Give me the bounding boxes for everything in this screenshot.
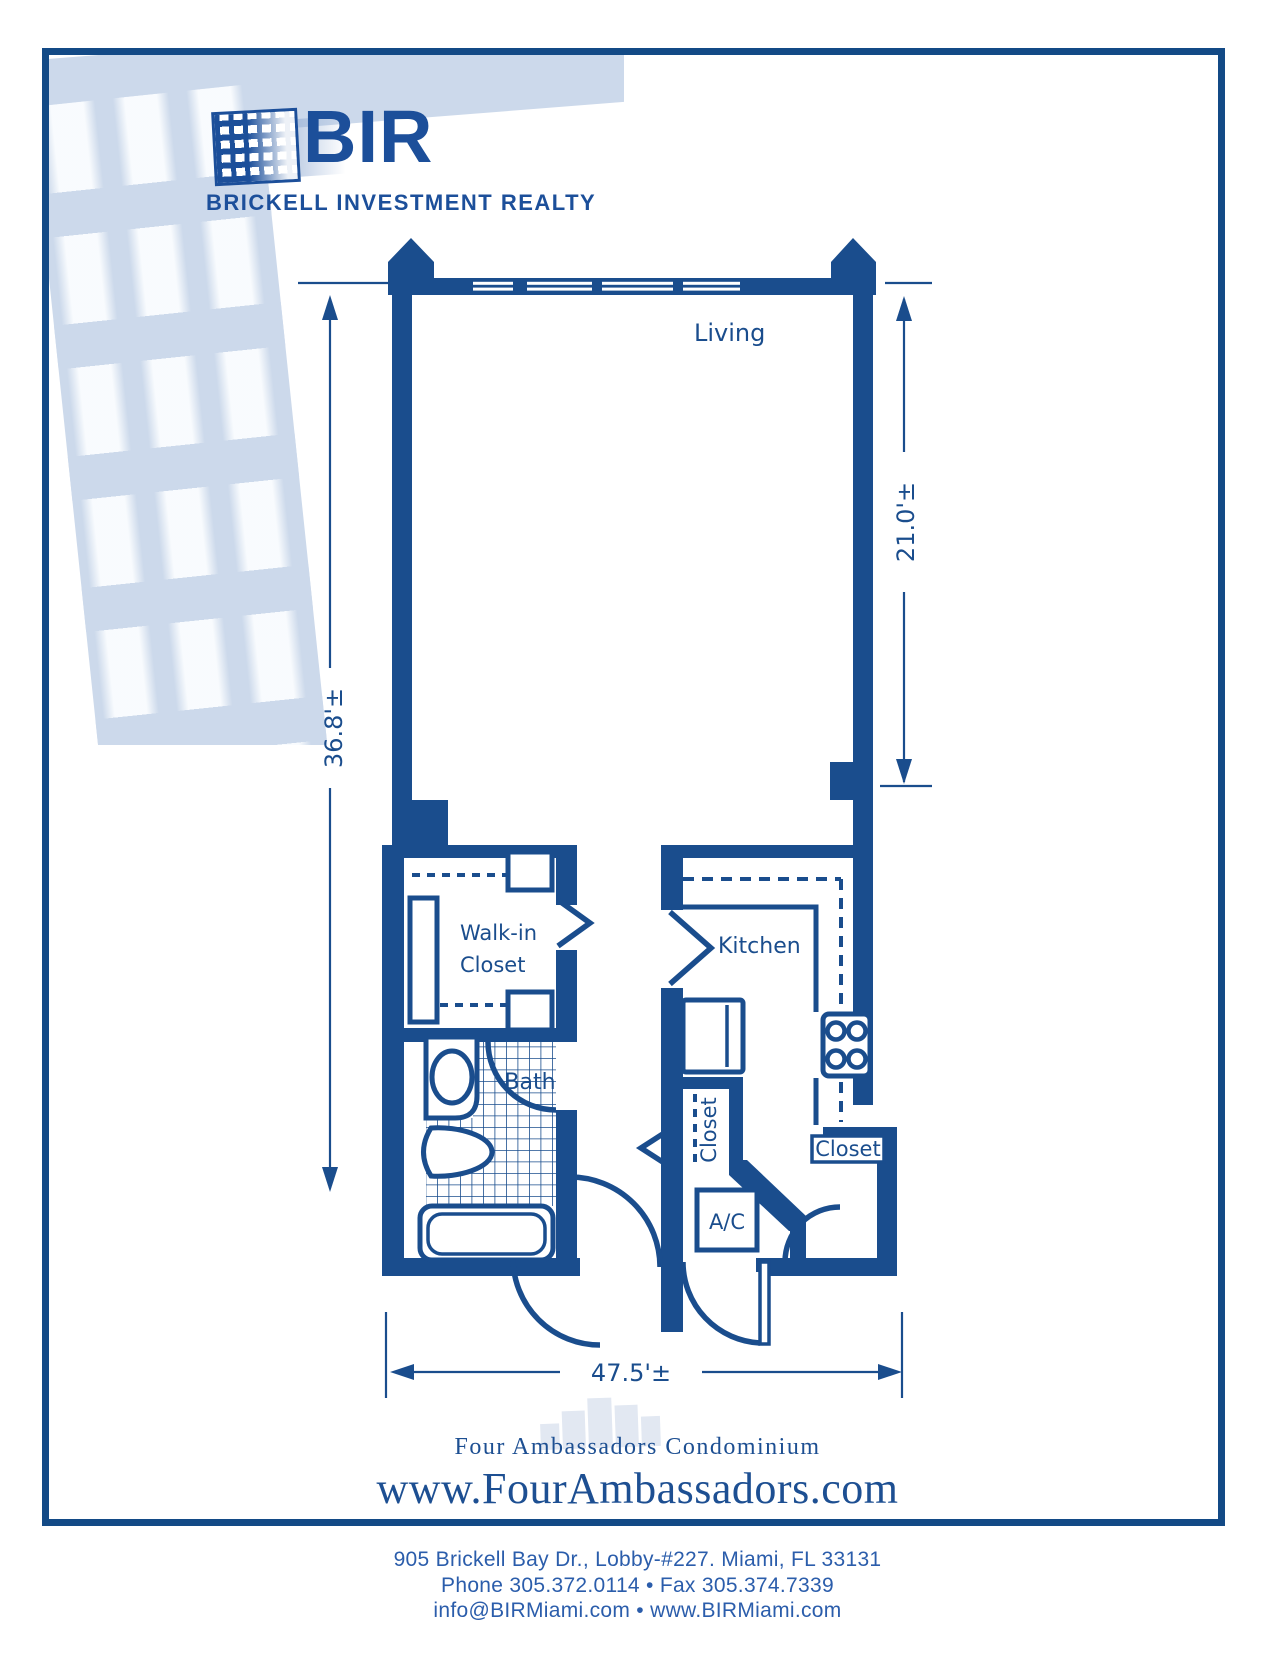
kitchen-top-wall <box>661 845 873 858</box>
burner <box>828 1023 845 1040</box>
label-ac: A/C <box>709 1210 745 1234</box>
label-bath: Bath <box>504 1070 555 1095</box>
burner <box>849 1023 866 1040</box>
right-pillar <box>789 238 876 295</box>
label-walkin-1: Walk-in <box>460 921 537 945</box>
label-kitchen: Kitchen <box>718 934 801 959</box>
floor-plan: Living Walk-in Closet Kitchen Bath Close… <box>0 0 1275 1672</box>
sink <box>432 1051 472 1103</box>
website-url: www.FourAmbassadors.com <box>0 1463 1275 1514</box>
dim-overall-width: 47.5'± <box>591 1359 671 1387</box>
entry-door-arc <box>683 1262 760 1343</box>
contact-block: 905 Brickell Bay Dr., Lobby-#227. Miami,… <box>0 1547 1275 1624</box>
dim-overall-depth: 36.8'± <box>320 688 348 768</box>
hall-door-arc <box>570 1177 660 1267</box>
window-wall <box>472 278 789 295</box>
phone-fax-line: Phone 305.372.0114 • Fax 305.374.7339 <box>0 1573 1275 1599</box>
entry-door-leaf <box>760 1262 769 1344</box>
bath-tile-floor <box>473 1042 556 1206</box>
label-walkin-2: Closet <box>460 953 525 977</box>
closet-shelf <box>508 852 552 890</box>
address-line: 905 Brickell Bay Dr., Lobby-#227. Miami,… <box>0 1547 1275 1573</box>
condo-name: Four Ambassadors Condominium <box>0 1434 1275 1461</box>
label-closet-entry: Closet <box>815 1137 880 1161</box>
living-left-wall <box>392 295 412 800</box>
label-closet-hall: Closet <box>697 1097 721 1162</box>
kitchen-door-swing <box>670 912 711 984</box>
refrigerator <box>683 1000 743 1072</box>
left-pillar <box>388 238 472 295</box>
label-living: Living <box>694 319 765 347</box>
walkin-door-swing <box>558 900 590 946</box>
burner <box>828 1051 845 1068</box>
left-outer-wall <box>382 845 404 1276</box>
living-right-wall <box>853 295 873 762</box>
burner <box>849 1051 866 1068</box>
toilet <box>424 1128 493 1177</box>
flyer-page: { "logo": { "name": "BIR", "tagline": "B… <box>0 0 1275 1672</box>
dim-living-depth: 21.0'± <box>892 482 920 562</box>
closet-shelf <box>410 898 437 1022</box>
email-web-line: info@BIRMiami.com • www.BIRMiami.com <box>0 1598 1275 1624</box>
closet-shelf <box>508 992 552 1030</box>
